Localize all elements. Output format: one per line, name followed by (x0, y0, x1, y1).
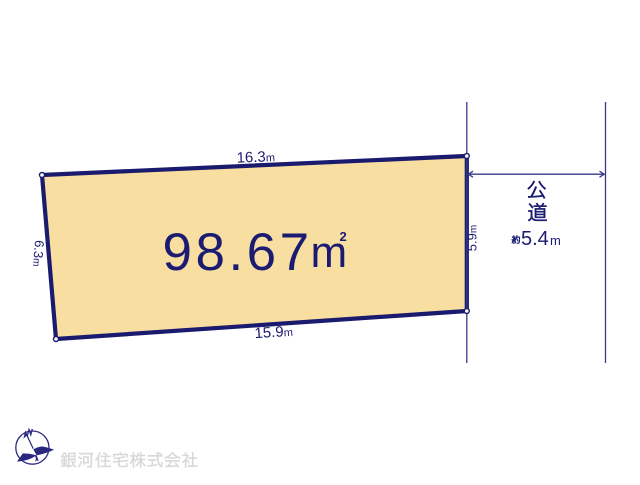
svg-text:6.3m: 6.3m (30, 240, 47, 268)
svg-text:2: 2 (340, 229, 347, 244)
svg-text:16.3m: 16.3m (236, 148, 275, 167)
svg-text:m: m (550, 233, 561, 248)
svg-text:15.9m: 15.9m (254, 323, 293, 343)
svg-text:98.67: 98.67 (163, 223, 313, 282)
svg-text:5.4: 5.4 (521, 228, 549, 250)
